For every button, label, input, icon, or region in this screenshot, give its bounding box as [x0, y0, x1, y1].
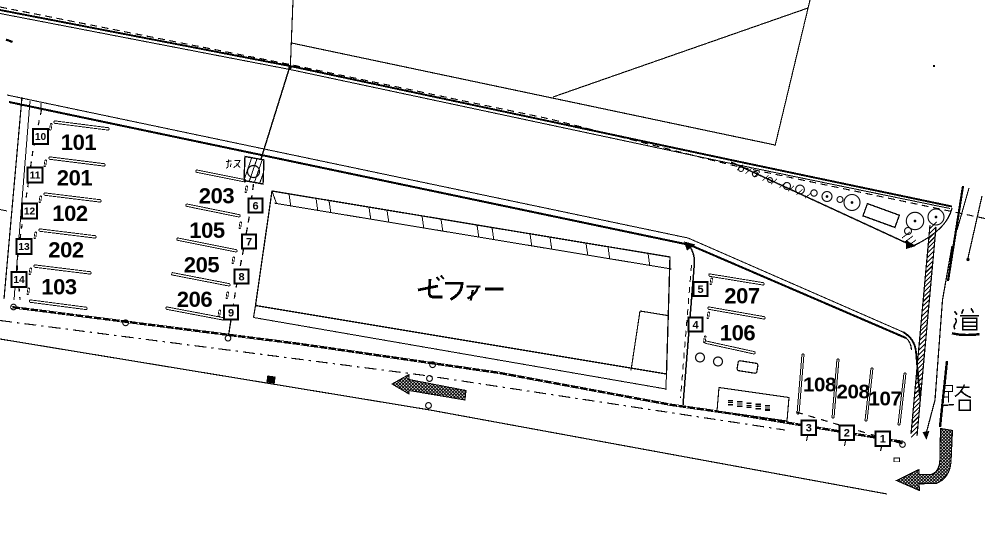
svg-text:106: 106: [720, 321, 756, 346]
svg-text:205: 205: [184, 253, 220, 278]
svg-text:2: 2: [844, 428, 850, 440]
svg-text:5: 5: [697, 284, 703, 296]
svg-text:105: 105: [189, 218, 225, 243]
svg-text:202: 202: [48, 238, 84, 263]
svg-text:201: 201: [57, 166, 93, 191]
svg-text:208: 208: [836, 381, 869, 404]
svg-text:3: 3: [806, 423, 812, 435]
svg-text:108: 108: [803, 374, 836, 397]
svg-text:1: 1: [880, 434, 886, 446]
svg-text:10: 10: [35, 132, 47, 143]
svg-text:4: 4: [692, 319, 699, 331]
svg-text:9: 9: [228, 307, 234, 319]
svg-text:206: 206: [177, 287, 213, 312]
svg-text:8: 8: [238, 271, 244, 283]
svg-text:11: 11: [30, 171, 41, 182]
svg-text:203: 203: [199, 184, 235, 209]
svg-text:101: 101: [61, 130, 97, 155]
svg-text:12: 12: [24, 207, 36, 218]
svg-text:13: 13: [18, 242, 30, 253]
svg-text:103: 103: [41, 275, 77, 300]
svg-text:7: 7: [246, 236, 252, 248]
svg-text:14: 14: [13, 275, 25, 286]
svg-text:207: 207: [724, 284, 760, 309]
svg-text:107: 107: [868, 388, 901, 411]
svg-text:6: 6: [252, 200, 258, 212]
svg-text:102: 102: [52, 201, 88, 226]
